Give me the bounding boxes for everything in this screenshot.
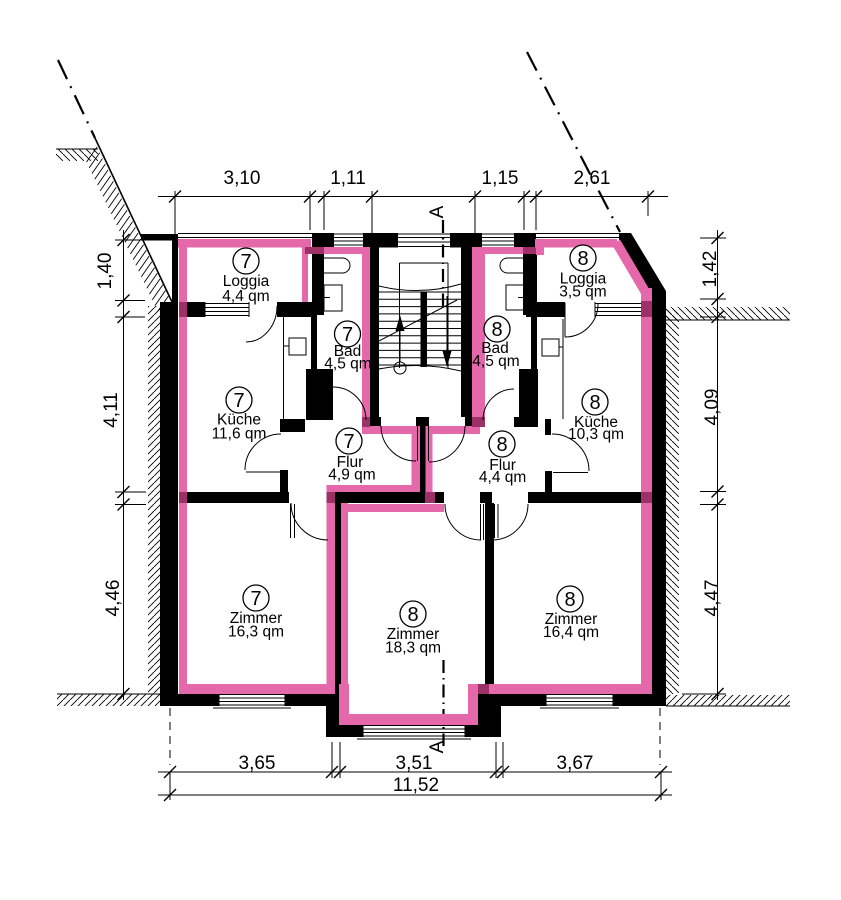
svg-text:A: A bbox=[427, 740, 448, 753]
svg-text:3,10: 3,10 bbox=[224, 168, 261, 189]
svg-text:11,6 qm: 11,6 qm bbox=[212, 426, 267, 443]
svg-text:4,4 qm: 4,4 qm bbox=[222, 288, 269, 305]
svg-text:8: 8 bbox=[491, 319, 502, 341]
svg-text:4,46: 4,46 bbox=[103, 580, 124, 617]
svg-text:8: 8 bbox=[577, 248, 588, 270]
svg-text:4,5 qm: 4,5 qm bbox=[472, 353, 519, 370]
svg-text:2,61: 2,61 bbox=[574, 168, 611, 189]
svg-text:7: 7 bbox=[240, 251, 251, 273]
svg-text:18,3 qm: 18,3 qm bbox=[385, 640, 441, 657]
svg-text:7: 7 bbox=[250, 588, 261, 610]
svg-text:3,51: 3,51 bbox=[396, 753, 433, 774]
svg-text:3,65: 3,65 bbox=[239, 753, 276, 774]
svg-text:A: A bbox=[427, 205, 448, 218]
svg-text:10,3 qm: 10,3 qm bbox=[568, 426, 624, 443]
svg-text:4,5 qm: 4,5 qm bbox=[324, 356, 371, 373]
svg-text:3,67: 3,67 bbox=[557, 753, 594, 774]
svg-text:4,11: 4,11 bbox=[101, 392, 122, 428]
svg-text:11,52: 11,52 bbox=[393, 775, 439, 796]
svg-text:16,4 qm: 16,4 qm bbox=[543, 624, 599, 641]
svg-text:3,5 qm: 3,5 qm bbox=[559, 284, 606, 301]
svg-text:7: 7 bbox=[343, 431, 354, 453]
svg-text:7: 7 bbox=[233, 390, 244, 412]
svg-text:8: 8 bbox=[496, 434, 507, 456]
svg-text:1,40: 1,40 bbox=[95, 253, 116, 290]
svg-text:1,42: 1,42 bbox=[700, 251, 721, 288]
svg-text:1,15: 1,15 bbox=[482, 168, 519, 189]
svg-text:4,4 qm: 4,4 qm bbox=[479, 469, 526, 486]
svg-text:8: 8 bbox=[407, 604, 418, 626]
svg-text:8: 8 bbox=[564, 589, 575, 611]
svg-text:4,9 qm: 4,9 qm bbox=[328, 467, 375, 484]
svg-text:4,09: 4,09 bbox=[702, 389, 723, 426]
svg-text:16,3 qm: 16,3 qm bbox=[228, 624, 284, 641]
svg-text:1,11: 1,11 bbox=[330, 168, 366, 189]
svg-text:4,47: 4,47 bbox=[702, 580, 723, 617]
svg-text:8: 8 bbox=[589, 392, 600, 414]
